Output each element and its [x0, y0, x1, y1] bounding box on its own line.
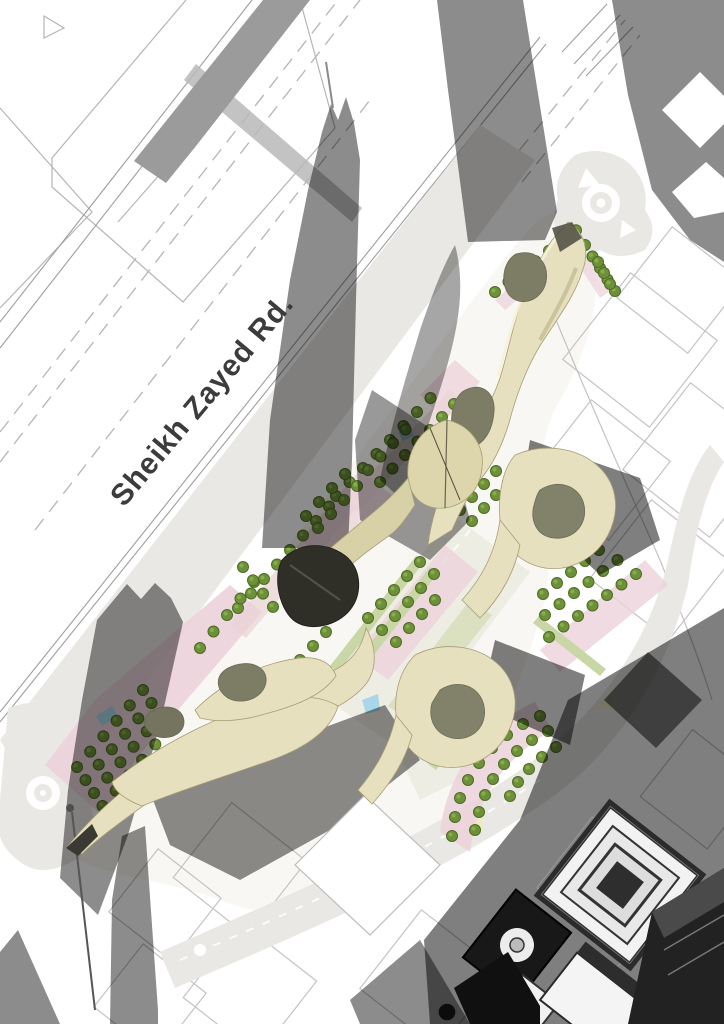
tree-highlight — [248, 590, 252, 594]
tree-icon — [308, 641, 319, 652]
tree-icon — [235, 593, 246, 604]
tree-highlight — [607, 281, 611, 285]
tree-icon — [491, 466, 502, 477]
site-plan-canvas: Sheikh Zayed Rd. — [0, 0, 724, 1024]
tree-icon — [321, 627, 332, 638]
tree-highlight — [439, 414, 443, 418]
shadow-corner-wedge — [0, 930, 60, 1024]
tree-icon — [558, 621, 569, 632]
tree-icon — [488, 774, 499, 785]
tree-icon — [429, 569, 440, 580]
tree-highlight — [493, 492, 497, 496]
tree-icon — [404, 623, 415, 634]
tree-icon — [246, 588, 257, 599]
tree-highlight — [493, 468, 497, 472]
mini-roundabout — [186, 936, 214, 964]
tree-highlight — [601, 270, 605, 274]
tree-highlight — [529, 737, 533, 741]
tree-highlight — [589, 253, 593, 257]
tree-icon — [544, 632, 555, 643]
tree-icon — [616, 579, 627, 590]
tree-highlight — [490, 776, 494, 780]
tree-highlight — [379, 627, 383, 631]
tree-highlight — [240, 564, 244, 568]
tree-highlight — [393, 639, 397, 643]
tree-icon — [524, 764, 535, 775]
tree-highlight — [432, 597, 436, 601]
tree-highlight — [481, 481, 485, 485]
tree-highlight — [260, 590, 264, 594]
tree-highlight — [237, 595, 241, 599]
tree-icon — [390, 611, 401, 622]
tree-icon — [447, 831, 458, 842]
tree-icon — [259, 574, 270, 585]
tree-icon — [403, 597, 414, 608]
tree-highlight — [235, 605, 239, 609]
tree-highlight — [465, 777, 469, 781]
tree-highlight — [457, 795, 461, 799]
tree-icon — [416, 583, 427, 594]
tree-highlight — [589, 602, 593, 606]
tree-highlight — [568, 569, 572, 573]
tree-highlight — [472, 827, 476, 831]
tree-highlight — [365, 615, 369, 619]
tree-highlight — [595, 259, 599, 263]
tree-highlight — [540, 591, 544, 595]
tree-highlight — [476, 809, 480, 813]
tree-highlight — [618, 581, 622, 585]
tree-highlight — [452, 814, 456, 818]
tree-highlight — [571, 590, 575, 594]
tree-highlight — [554, 580, 558, 584]
tree-icon — [480, 790, 491, 801]
tree-icon — [238, 562, 249, 573]
tree-highlight — [274, 561, 278, 565]
tree-highlight — [405, 599, 409, 603]
tree-icon — [450, 812, 461, 823]
courtyard-void-wing-west — [144, 707, 184, 738]
tree-icon — [527, 735, 538, 746]
tree-icon — [599, 268, 610, 279]
tree-highlight — [378, 601, 382, 605]
tree-highlight — [526, 766, 530, 770]
tree-icon — [605, 279, 616, 290]
tree-highlight — [419, 611, 423, 615]
tree-icon — [195, 643, 206, 654]
tree-icon — [569, 588, 580, 599]
tree-highlight — [224, 612, 228, 616]
tree-highlight — [406, 625, 410, 629]
tree-highlight — [404, 573, 408, 577]
tree-highlight — [560, 623, 564, 627]
tree-icon — [455, 793, 466, 804]
tree-icon — [540, 610, 551, 621]
tree-highlight — [354, 483, 358, 487]
tree-icon — [417, 609, 428, 620]
tree-highlight — [418, 585, 422, 589]
tree-icon — [376, 599, 387, 610]
tree-highlight — [392, 613, 396, 617]
tree-highlight — [542, 612, 546, 616]
tree-icon — [268, 601, 279, 612]
tree-icon — [505, 791, 516, 802]
tree-highlight — [633, 571, 637, 575]
tree-icon — [573, 611, 584, 622]
tree-highlight — [481, 505, 485, 509]
tree-icon — [248, 575, 259, 586]
tree-highlight — [391, 587, 395, 591]
site-plan-image: Sheikh Zayed Rd. — [0, 0, 724, 1024]
tree-highlight — [451, 401, 455, 405]
tree-icon — [258, 588, 269, 599]
tree-highlight — [431, 571, 435, 575]
tree-highlight — [417, 559, 421, 563]
tree-icon — [430, 595, 441, 606]
tree-highlight — [492, 289, 496, 293]
tree-highlight — [585, 579, 589, 583]
tree-highlight — [310, 643, 314, 647]
tree-highlight — [482, 792, 486, 796]
tree-icon — [363, 613, 374, 624]
tree-highlight — [197, 645, 201, 649]
tree-highlight — [210, 628, 214, 632]
tree-icon — [415, 557, 426, 568]
tree-icon — [391, 637, 402, 648]
tree-icon — [587, 600, 598, 611]
tree-highlight — [501, 761, 505, 765]
tree-highlight — [323, 629, 327, 633]
tree-icon — [513, 777, 524, 788]
tree-highlight — [539, 754, 543, 758]
tree-highlight — [507, 793, 511, 797]
tree-highlight — [546, 634, 550, 638]
tree-icon — [402, 571, 413, 582]
tree-icon — [208, 626, 219, 637]
tree-icon — [222, 610, 233, 621]
tree-icon — [479, 503, 490, 514]
tree-highlight — [250, 577, 254, 581]
tree-highlight — [261, 576, 265, 580]
tree-highlight — [449, 833, 453, 837]
tree-highlight — [556, 601, 560, 605]
tree-icon — [377, 625, 388, 636]
tree-icon — [552, 578, 563, 589]
tree-highlight — [270, 603, 274, 607]
tree-icon — [566, 567, 577, 578]
tree-icon — [554, 599, 565, 610]
tree-icon — [463, 775, 474, 786]
tree-icon — [512, 746, 523, 757]
tree-highlight — [604, 592, 608, 596]
dark-rotunda — [438, 1003, 456, 1021]
tree-icon — [490, 287, 501, 298]
tree-icon — [583, 577, 594, 588]
tree-icon — [389, 585, 400, 596]
tree-icon — [538, 589, 549, 600]
tree-icon — [602, 590, 613, 601]
tree-highlight — [515, 779, 519, 783]
courtyard-void-north — [504, 253, 547, 302]
tree-highlight — [514, 748, 518, 752]
tree-icon — [593, 257, 604, 268]
tree-icon — [470, 825, 481, 836]
tree-icon — [499, 759, 510, 770]
tree-icon — [631, 569, 642, 580]
tree-highlight — [575, 613, 579, 617]
tree-icon — [474, 807, 485, 818]
